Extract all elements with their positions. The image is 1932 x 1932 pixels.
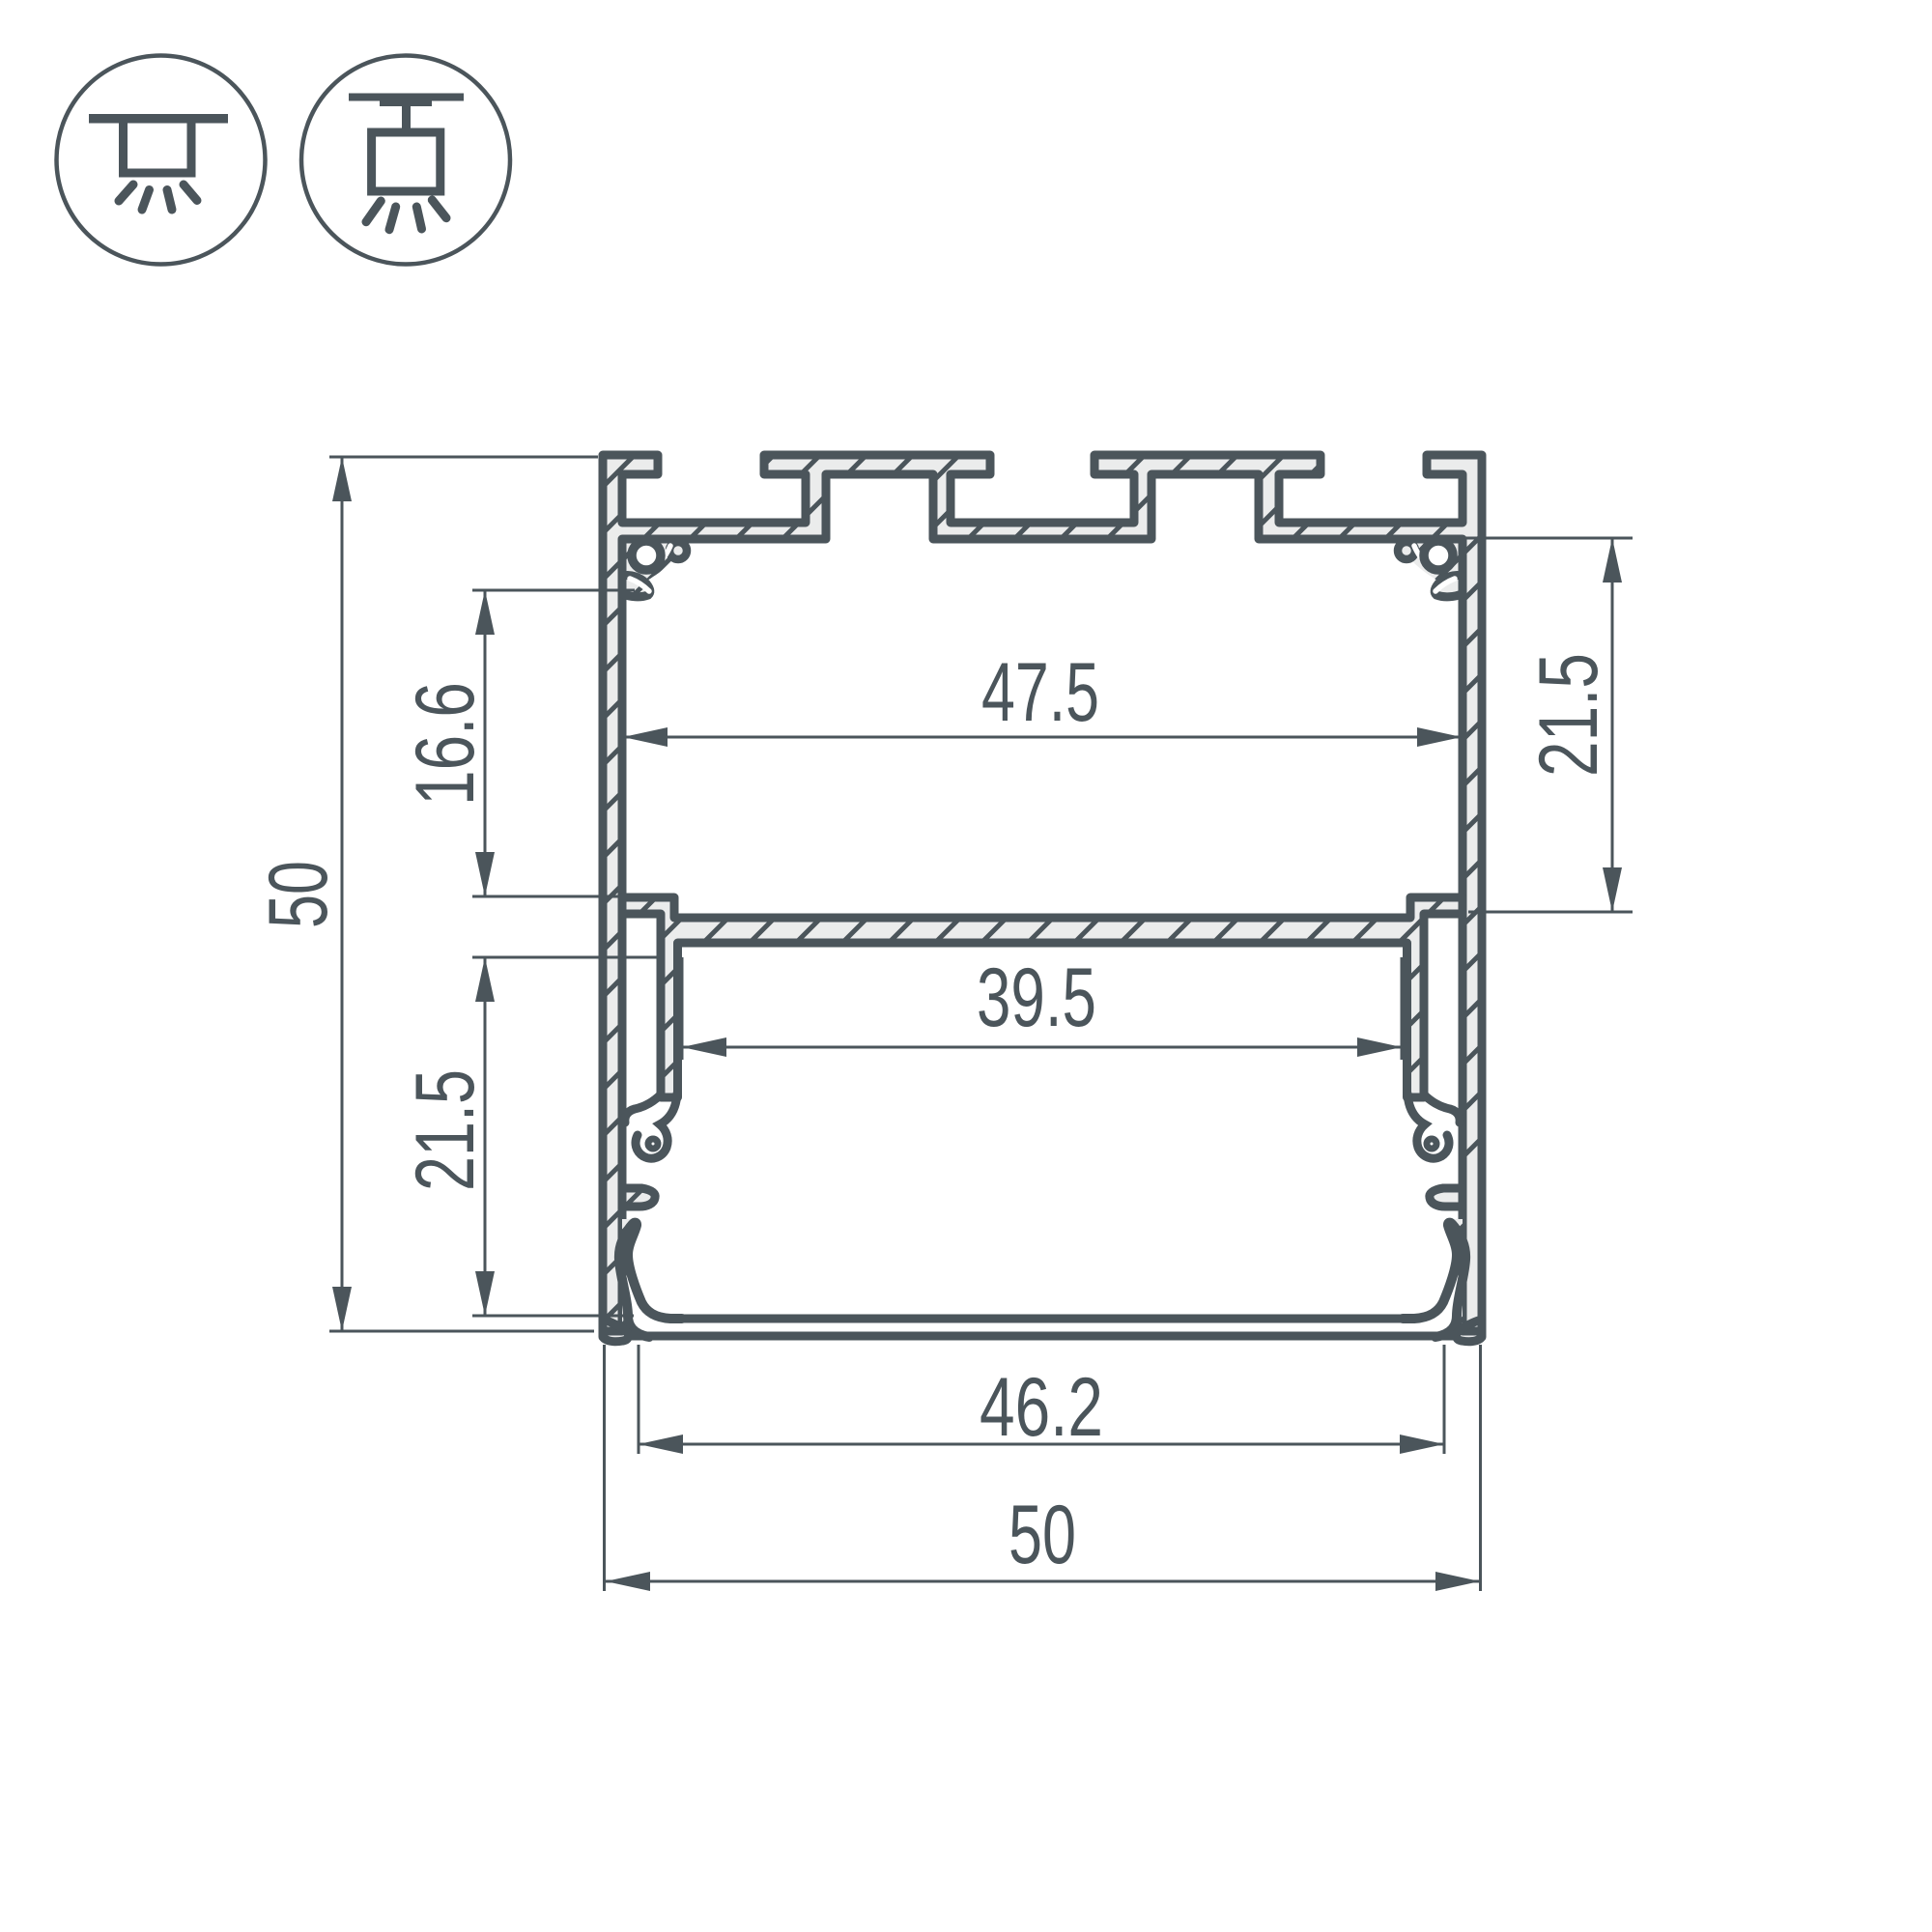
svg-text:21.5: 21.5 [399,1069,492,1191]
svg-text:39.5: 39.5 [977,952,1096,1044]
svg-text:50: 50 [252,861,345,928]
svg-text:16.6: 16.6 [399,682,492,806]
svg-text:47.5: 47.5 [981,646,1099,739]
svg-text:50: 50 [1009,1489,1076,1581]
svg-text:46.2: 46.2 [980,1361,1103,1454]
svg-text:21.5: 21.5 [1522,653,1615,777]
